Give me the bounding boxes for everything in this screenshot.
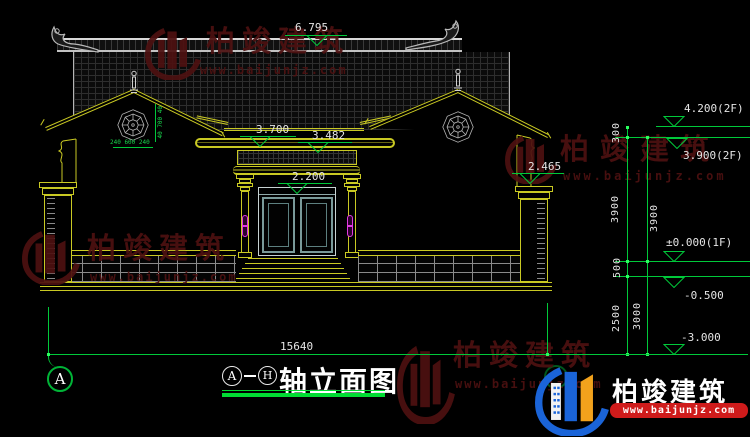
chain-node — [646, 260, 649, 263]
chain-node — [626, 126, 629, 129]
brand-logo-icon — [143, 24, 203, 80]
watermark-url: www.baijunjz.com — [90, 270, 238, 284]
left-bagua-window-icon — [117, 109, 149, 141]
chain-node — [626, 275, 629, 278]
chain-dim: 2500 — [611, 297, 622, 339]
chain-dim: 3000 — [632, 295, 643, 337]
level-foundation: -3.000 — [681, 331, 721, 344]
window-dim-h: 240 600 240 — [110, 139, 150, 146]
level-main-eave: 3.700 — [256, 123, 289, 136]
wall-lamp-right — [347, 215, 353, 237]
chain-node — [626, 260, 629, 263]
extension-line-left — [48, 307, 49, 355]
door-leaf-left — [262, 197, 295, 253]
level-marker-icon — [286, 183, 308, 194]
chain-line-inner — [627, 127, 628, 355]
column-base — [345, 252, 359, 258]
level-line — [615, 261, 750, 262]
title-dash — [244, 375, 256, 377]
ridge-ornament-left-icon — [48, 22, 100, 54]
left-finial-icon — [129, 70, 139, 94]
title-axis-end: H — [258, 366, 277, 385]
chain-node — [646, 136, 649, 139]
chain-dim: 500 — [612, 258, 623, 278]
level-marker-icon — [306, 35, 328, 46]
pillar-cap — [518, 192, 550, 199]
site-logo: 柏竣建筑 www.baijunjz.com — [533, 360, 750, 437]
chain-dim: 3900 — [649, 196, 660, 240]
extension-line-right — [547, 303, 548, 355]
site-logo-icon — [533, 362, 611, 436]
porch-canopy-tiles — [237, 150, 357, 165]
pillar-hatch — [537, 202, 545, 279]
brand-logo-icon — [397, 340, 455, 424]
window-dim-v: 40 700 40 — [157, 106, 164, 139]
cad-elevation-drawing: 40 700 40 240 600 240 — [0, 0, 750, 437]
level-marker-icon — [663, 277, 685, 288]
window-dim-line-h — [113, 147, 153, 148]
step-line — [248, 258, 338, 259]
watermark-brand: 柏竣建筑 — [206, 26, 350, 56]
right-bagua-window-icon — [442, 111, 474, 143]
step-line — [242, 268, 344, 269]
title-axis-start: A — [222, 366, 242, 386]
axis-bubble-a: A — [47, 366, 73, 392]
brand-logo-icon — [20, 227, 82, 285]
wall-lamp-left — [242, 215, 248, 237]
title-underline-thick — [222, 393, 385, 397]
level-line — [512, 173, 564, 174]
ground-line — [40, 290, 552, 291]
door-leaf-right — [300, 197, 333, 253]
level-line — [278, 183, 332, 184]
level-marker-icon — [307, 142, 329, 153]
dimension-baseline — [48, 354, 748, 355]
step-line — [239, 273, 347, 274]
level-f2: 3.900(2F) — [683, 149, 743, 162]
step-line — [236, 278, 350, 279]
level-door: 2.200 — [292, 170, 325, 183]
corbel-left-icon — [53, 138, 77, 184]
door-panel — [268, 203, 289, 247]
level-marker-icon — [666, 138, 688, 149]
chain-node — [546, 353, 549, 356]
main-eave-fascia — [195, 138, 395, 148]
level-f2-roof: 4.200(2F) — [684, 102, 744, 115]
right-finial-icon — [453, 68, 463, 92]
level-f1: ±0.000(1F) — [666, 236, 732, 249]
title-underline — [222, 390, 385, 391]
chain-node — [626, 136, 629, 139]
pillar-cap — [42, 188, 74, 195]
door-top-rail — [259, 194, 335, 195]
ground-line — [40, 286, 552, 287]
level-ground: -0.500 — [684, 289, 724, 302]
watermark-url: www.baijunjz.com — [200, 63, 348, 77]
level-line — [298, 142, 352, 143]
site-logo-url: www.baijunjz.com — [610, 403, 748, 418]
level-marker-icon — [249, 136, 271, 147]
watermark-brand: 柏竣建筑 — [87, 233, 231, 263]
level-canopy: 3.482 — [312, 129, 345, 142]
level-line — [656, 126, 750, 127]
level-line — [285, 35, 347, 36]
level-marker-icon — [519, 173, 541, 184]
total-width-dim: 15640 — [280, 340, 313, 353]
wall-pillar-right — [520, 199, 548, 282]
chain-dim: 3900 — [610, 187, 621, 231]
level-side-eave: 2.465 — [528, 160, 561, 173]
level-line — [240, 136, 296, 137]
chain-line-outer — [647, 137, 648, 355]
door-panel — [306, 203, 327, 247]
step-line — [245, 263, 341, 264]
window-dim-line-v — [155, 104, 156, 142]
level-ridge: 6.795 — [295, 21, 328, 34]
ridge-ornament-right-icon — [404, 18, 466, 54]
chain-dim: 300 — [611, 119, 622, 145]
watermark-url: www.baijunjz.com — [563, 169, 727, 183]
